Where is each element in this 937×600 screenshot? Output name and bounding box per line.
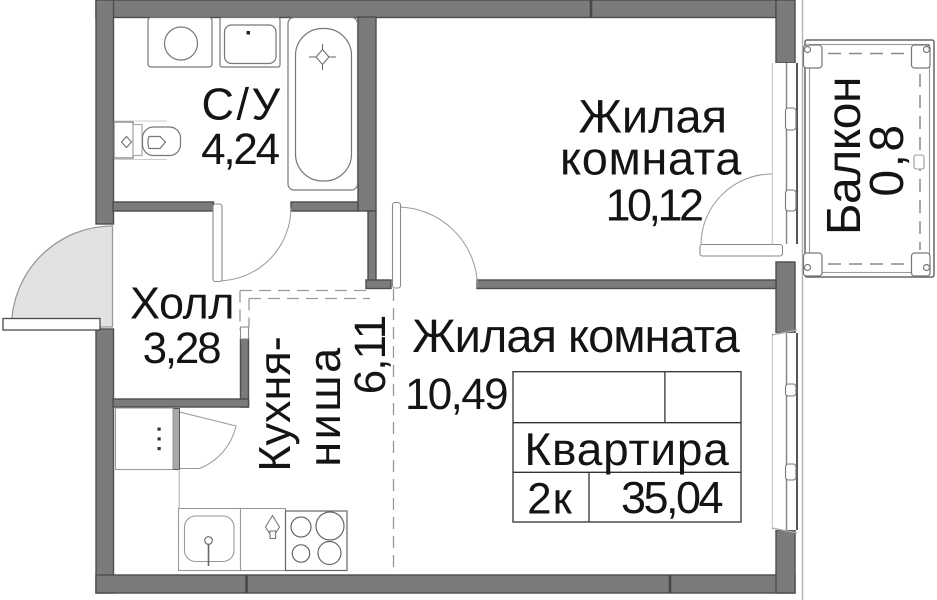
svg-text:4,24: 4,24 xyxy=(201,125,280,174)
svg-text:10,12: 10,12 xyxy=(605,180,702,231)
svg-text:Холл: Холл xyxy=(130,278,234,329)
svg-text:С/У: С/У xyxy=(201,79,282,130)
svg-text:0,8: 0,8 xyxy=(861,122,914,196)
svg-text:Кухня-: Кухня- xyxy=(249,336,300,471)
svg-text:10,49: 10,49 xyxy=(405,370,507,419)
svg-text:3,28: 3,28 xyxy=(143,324,221,373)
svg-text:Квартира: Квартира xyxy=(524,423,729,475)
svg-text:комната: комната xyxy=(560,132,742,185)
svg-text:Жилая комната: Жилая комната xyxy=(412,309,740,362)
svg-text:ниша: ниша xyxy=(299,345,350,467)
svg-text:35,04: 35,04 xyxy=(621,472,723,523)
svg-text:6,11: 6,11 xyxy=(346,316,395,394)
svg-text:2к: 2к xyxy=(527,475,573,524)
